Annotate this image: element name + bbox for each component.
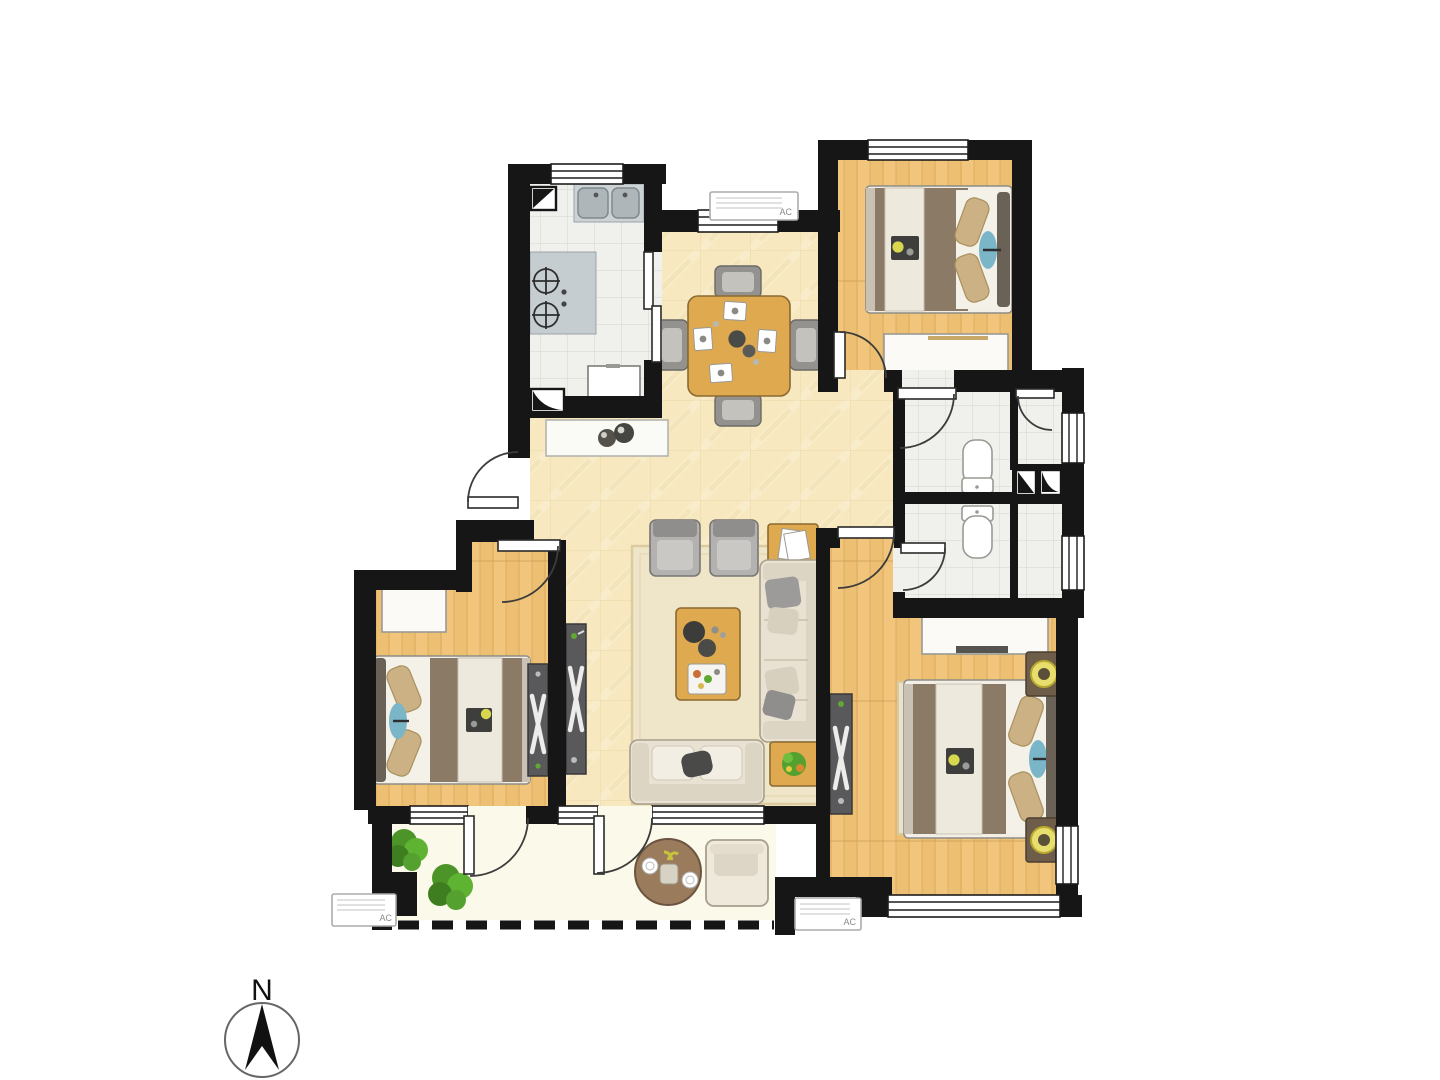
entry-door bbox=[468, 452, 518, 508]
window bbox=[1056, 826, 1078, 884]
floor-plan-page: AC AC AC N bbox=[0, 0, 1440, 1080]
compass-needle-icon bbox=[245, 1004, 279, 1070]
faucet-icon bbox=[623, 193, 628, 198]
loveseat bbox=[630, 740, 764, 804]
console-bowl bbox=[598, 429, 616, 447]
tv-cabinet-living bbox=[566, 624, 586, 774]
sink-left bbox=[578, 188, 608, 218]
flue-shaft-icon bbox=[531, 389, 564, 412]
ac-label: AC bbox=[779, 207, 792, 217]
hallway-floor bbox=[818, 390, 894, 538]
window bbox=[551, 164, 623, 184]
window bbox=[888, 895, 1060, 917]
toilet bbox=[963, 516, 992, 558]
dresser-handle bbox=[956, 646, 1008, 653]
ac-label: AC bbox=[379, 913, 392, 923]
window bbox=[410, 806, 468, 824]
floor-plan-drawing: AC AC AC N bbox=[0, 0, 1440, 1080]
balcony-armchair bbox=[706, 840, 768, 906]
window bbox=[868, 140, 968, 160]
kitchen-sliding-door bbox=[644, 252, 662, 362]
vent-shaft-icon bbox=[1040, 470, 1061, 495]
flue-shaft-icon bbox=[531, 187, 556, 210]
armchair bbox=[710, 520, 758, 576]
armchair bbox=[650, 520, 700, 576]
balcony-table bbox=[635, 839, 701, 905]
ac-unit: AC bbox=[332, 894, 396, 926]
ac-unit: AC bbox=[710, 192, 798, 220]
side-table-bottom bbox=[770, 742, 818, 786]
compass: N bbox=[225, 974, 299, 1077]
tv-cabinet-bedroom-left bbox=[528, 664, 548, 776]
bedroom-top-right bbox=[866, 186, 1012, 372]
console-bowl bbox=[614, 423, 634, 443]
fridge-handle bbox=[606, 364, 620, 368]
window bbox=[1062, 413, 1084, 463]
sofa-pillow bbox=[767, 607, 800, 636]
sofa-pillow bbox=[764, 576, 802, 610]
faucet-icon bbox=[594, 193, 599, 198]
ac-unit: AC bbox=[795, 898, 861, 930]
window bbox=[1062, 536, 1084, 590]
tv-cabinet-master bbox=[830, 694, 852, 814]
desk bbox=[382, 588, 446, 632]
cooktop-knob-icon bbox=[561, 301, 566, 306]
sink-right bbox=[612, 188, 639, 218]
vent-shaft-icon bbox=[1016, 470, 1036, 495]
ac-label: AC bbox=[843, 917, 856, 927]
window bbox=[652, 806, 764, 824]
entry-console bbox=[546, 420, 668, 456]
coffee-table bbox=[676, 608, 740, 700]
window bbox=[558, 806, 598, 824]
cooktop-knob-icon bbox=[561, 289, 566, 294]
